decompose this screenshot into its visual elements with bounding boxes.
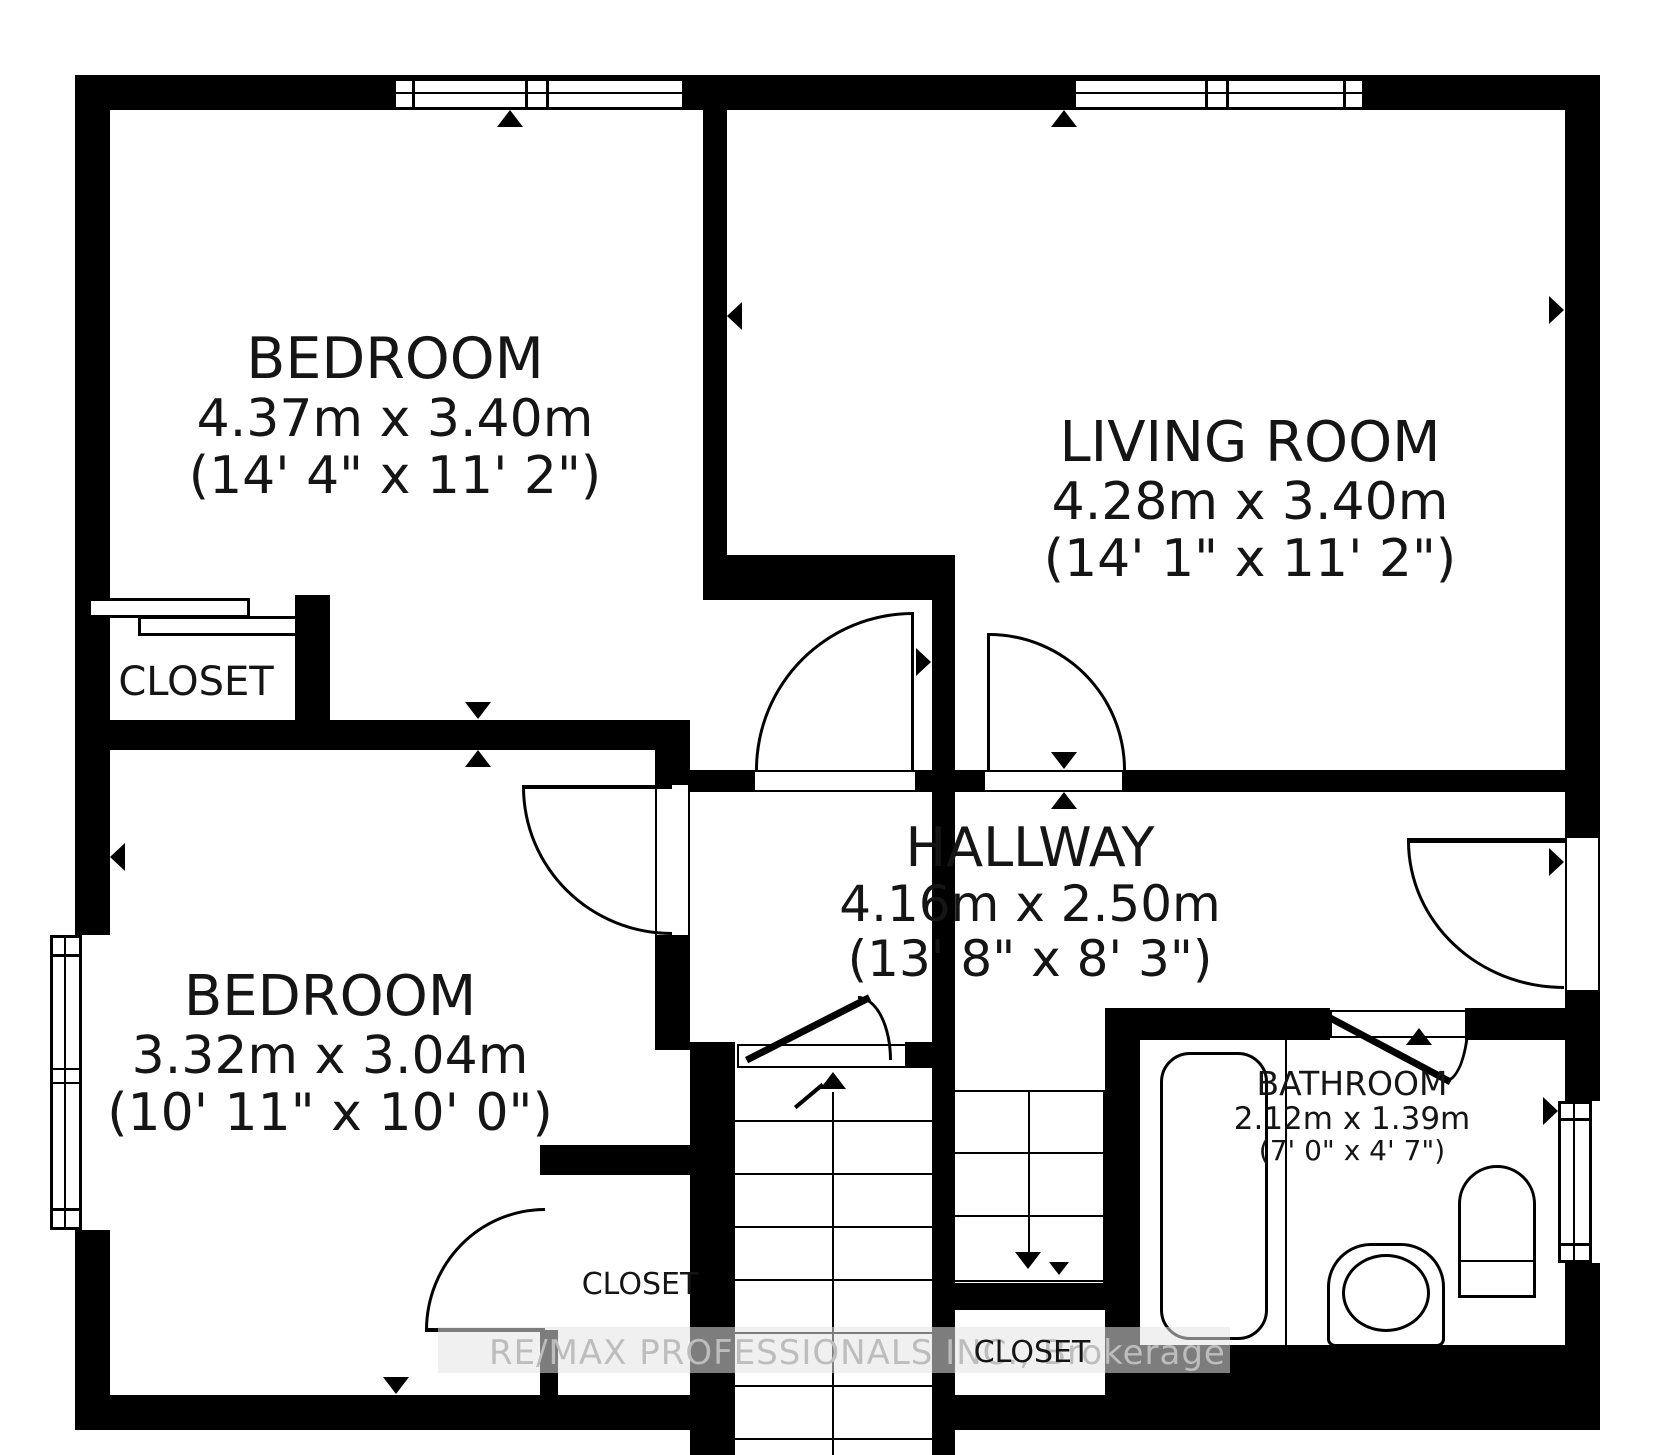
bedroom1-window-mullion bbox=[525, 78, 549, 110]
bedroom1-name: BEDROOM bbox=[189, 328, 601, 391]
marker-bedroom-divider-top-icon bbox=[465, 702, 491, 719]
marker-bathroom-door-icon bbox=[1406, 1028, 1432, 1045]
wall-bottom-right bbox=[955, 1395, 1600, 1430]
wall-landing-left bbox=[690, 1042, 735, 1068]
bathroom-dims-imperial: (7' 0" x 4' 7") bbox=[1234, 1136, 1471, 1167]
marker-living-window-icon bbox=[1051, 110, 1077, 127]
wall-right-upper bbox=[1565, 75, 1600, 838]
bathroom-name: BATHROOM bbox=[1234, 1066, 1471, 1102]
bathroom-label: BATHROOM 2.12m x 1.39m (7' 0" x 4' 7") bbox=[1234, 1066, 1471, 1167]
bedroom2-window-div1 bbox=[52, 1068, 80, 1070]
wall-top bbox=[75, 75, 1600, 110]
wall-hall-top-left bbox=[690, 770, 755, 792]
living-dims-imperial: (14' 1" x 11' 2") bbox=[1044, 531, 1456, 588]
marker-divider-wall-icon bbox=[727, 302, 742, 330]
stair-up-arrow-icon bbox=[820, 1072, 846, 1089]
hall-exterior-door-opening bbox=[1565, 838, 1600, 990]
bedroom1-door-opening bbox=[755, 770, 915, 792]
living-door-arc bbox=[989, 633, 1126, 770]
wall-right-mid bbox=[1565, 990, 1600, 1101]
bedroom2-dims-metric: 3.32m x 3.04m bbox=[107, 1028, 552, 1085]
bedroom1-dims-imperial: (14' 4" x 11' 2") bbox=[189, 448, 601, 505]
floor-plan: BEDROOM 4.37m x 3.40m (14' 4" x 11' 2") … bbox=[0, 0, 1680, 1455]
wall-left-upper bbox=[75, 75, 110, 935]
marker-bottom-wall-icon bbox=[383, 1377, 409, 1394]
bathroom-window bbox=[1558, 1101, 1592, 1263]
wall-hall-top-mid bbox=[915, 770, 985, 792]
living-dims-metric: 4.28m x 3.40m bbox=[1044, 474, 1456, 531]
wall-closet2-top bbox=[540, 1145, 690, 1175]
hall-exterior-door-leaf bbox=[1407, 838, 1565, 843]
closet1-label: CLOSET bbox=[118, 660, 273, 704]
wall-hall-top-right bbox=[1122, 770, 1565, 792]
wall-stair-left bbox=[690, 1068, 735, 1455]
closet1-slider-panel-a bbox=[88, 598, 250, 618]
flight-tread bbox=[955, 1090, 1105, 1092]
bedroom1-label: BEDROOM 4.37m x 3.40m (14' 4" x 11' 2") bbox=[189, 328, 601, 505]
hall-exterior-door-arc bbox=[1407, 841, 1564, 989]
bathroom-dims-metric: 2.12m x 1.39m bbox=[1234, 1102, 1471, 1136]
wall-bathroom-top-right bbox=[1465, 1008, 1565, 1040]
bathroom-window-innerline bbox=[1573, 1104, 1575, 1260]
marker-bedroom1-door-icon bbox=[916, 648, 931, 676]
bedroom1-window-cap-left bbox=[393, 78, 415, 110]
wall-bedroom2-right-upper bbox=[655, 750, 690, 785]
bedroom1-dims-metric: 4.37m x 3.40m bbox=[189, 391, 601, 448]
living-window-mullion bbox=[1205, 78, 1229, 110]
bedroom2-dims-imperial: (10' 11" x 10' 0") bbox=[107, 1085, 552, 1142]
watermark-text: RE/MAX PROFESSIONALS INC., Brokerage bbox=[489, 1333, 1226, 1373]
living-window-cap-right bbox=[1343, 78, 1365, 110]
bathroom-window-cap-bottom bbox=[1558, 1243, 1592, 1263]
living-door-opening bbox=[985, 770, 1122, 792]
wall-bedroom2-right-lower bbox=[655, 935, 690, 1050]
marker-hall-exterior-door-icon bbox=[1549, 848, 1564, 876]
closet2-label: CLOSET bbox=[582, 1268, 699, 1301]
marker-bathroom-window-icon bbox=[1543, 1097, 1558, 1125]
closet1-slider-panel-b bbox=[138, 616, 298, 636]
wall-bedroom1-living-divider bbox=[703, 110, 727, 560]
flight-right-line bbox=[1103, 1090, 1105, 1283]
staircase-down-flight bbox=[955, 1090, 1105, 1283]
bedroom2-window-div2 bbox=[52, 1082, 80, 1084]
sink-base-line bbox=[1461, 1260, 1533, 1262]
living-name: LIVING ROOM bbox=[1044, 412, 1456, 474]
bathroom-window-cap-top bbox=[1558, 1101, 1592, 1121]
marker-bedroom-divider-bottom-icon bbox=[465, 750, 491, 767]
bedroom1-door-arc bbox=[755, 612, 913, 770]
flight-tread bbox=[955, 1152, 1105, 1154]
toilet-bowl bbox=[1342, 1254, 1430, 1332]
sink bbox=[1458, 1165, 1536, 1298]
marker-left-wall-icon bbox=[110, 843, 125, 871]
wall-bathroom-top-left bbox=[1140, 1008, 1330, 1040]
living-label: LIVING ROOM 4.28m x 3.40m (14' 1" x 11' … bbox=[1044, 412, 1456, 588]
bedroom2-door-leaf bbox=[522, 785, 672, 789]
stair-door-arc bbox=[858, 996, 892, 1060]
flight-down-arrow-small-icon bbox=[1049, 1262, 1069, 1275]
staircase-main bbox=[735, 1068, 932, 1455]
wall-bedroom-divider bbox=[75, 720, 690, 750]
bedroom2-name: BEDROOM bbox=[107, 966, 552, 1028]
bedroom2-window-cap-top bbox=[50, 935, 82, 957]
flight-down-arrow-icon bbox=[1015, 1252, 1041, 1269]
bedroom2-label: BEDROOM 3.32m x 3.04m (10' 11" x 10' 0") bbox=[107, 966, 552, 1142]
closet2-door-arc bbox=[425, 1208, 545, 1330]
bedroom2-window-cap-bottom bbox=[50, 1208, 82, 1230]
wall-landing-right bbox=[905, 1042, 955, 1068]
stair-center-line bbox=[832, 1092, 834, 1455]
marker-hall-wall-bottom-icon bbox=[1051, 792, 1077, 809]
bedroom1-window-midline bbox=[396, 92, 682, 94]
marker-living-right-wall-icon bbox=[1549, 296, 1564, 324]
living-window-midline bbox=[1076, 92, 1362, 94]
wall-closet3-top bbox=[932, 1283, 1140, 1310]
flight-tread bbox=[955, 1215, 1105, 1217]
bedroom1-door-leaf bbox=[911, 612, 914, 770]
wall-jog bbox=[703, 555, 955, 600]
marker-hall-wall-top-icon bbox=[1051, 752, 1077, 769]
bedroom2-door-arc bbox=[522, 787, 672, 935]
hallway-label: HALLWAY 4.16m x 2.50m (13' 8" x 8' 3") bbox=[839, 818, 1220, 987]
hallway-name: HALLWAY bbox=[839, 818, 1220, 877]
hallway-dims-imperial: (13' 8" x 8' 3") bbox=[839, 932, 1220, 987]
flight-tread bbox=[955, 1280, 1105, 1282]
closet3-label: CLOSET bbox=[974, 1336, 1091, 1369]
living-door-leaf bbox=[987, 633, 990, 770]
marker-bedroom1-window-icon bbox=[497, 110, 523, 127]
wall-bottom-left bbox=[75, 1395, 700, 1430]
hallway-dims-metric: 4.16m x 2.50m bbox=[839, 877, 1220, 932]
flight-center-line bbox=[1028, 1090, 1030, 1258]
